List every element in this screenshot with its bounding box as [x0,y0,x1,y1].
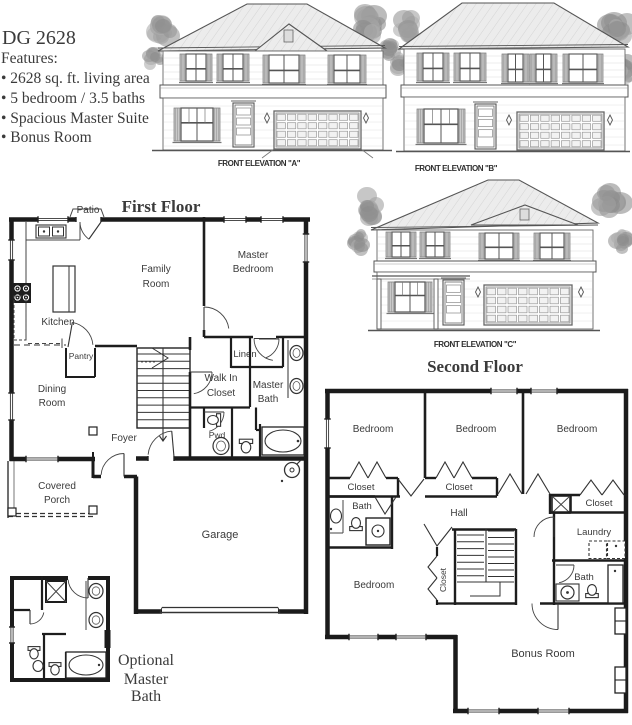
svg-text:Covered: Covered [38,481,76,492]
svg-text:Porch: Porch [44,495,70,506]
svg-text:Closet: Closet [438,567,448,592]
svg-text:Dining: Dining [38,384,66,395]
svg-text:Pwd: Pwd [209,430,226,440]
svg-text:Patio: Patio [77,205,100,216]
svg-text:Closet: Closet [207,388,236,399]
svg-text:Closet: Closet [586,498,613,509]
svg-text:Bath: Bath [352,501,372,512]
svg-text:Master: Master [124,671,169,688]
svg-text:Kitchen: Kitchen [41,317,74,328]
svg-text:• 2628 sq. ft. living area: • 2628 sq. ft. living area [1,70,150,87]
svg-text:Bedroom: Bedroom [233,264,274,275]
svg-text:Pantry: Pantry [69,351,94,361]
svg-text:Hall: Hall [450,508,467,519]
svg-text:FRONT ELEVATION "A": FRONT ELEVATION "A" [218,159,301,168]
svg-text:Garage: Garage [202,529,239,541]
svg-text:Second Floor: Second Floor [427,357,523,376]
svg-text:Features:: Features: [1,50,58,67]
svg-text:Laundry: Laundry [577,527,612,538]
svg-text:Room: Room [143,279,170,290]
svg-text:Optional: Optional [118,652,175,669]
svg-text:Linen: Linen [233,349,256,360]
svg-text:• 5 bedroom / 3.5 baths: • 5 bedroom / 3.5 baths [1,90,145,107]
svg-text:Family: Family [141,264,170,275]
svg-text:Bedroom: Bedroom [353,424,394,435]
svg-text:Bedroom: Bedroom [456,424,497,435]
svg-text:Foyer: Foyer [111,433,137,444]
svg-text:• Bonus Room: • Bonus Room [1,129,92,146]
svg-text:Closet: Closet [446,482,473,493]
svg-text:FRONT ELEVATION "C": FRONT ELEVATION "C" [434,340,517,349]
svg-text:Bath: Bath [574,572,594,583]
svg-text:First Floor: First Floor [122,197,201,216]
svg-text:• Spacious Master Suite: • Spacious Master Suite [1,110,149,127]
svg-text:Bath: Bath [258,394,279,405]
svg-text:Master: Master [253,380,284,391]
svg-text:Master: Master [238,250,269,261]
svg-text:FRONT ELEVATION "B": FRONT ELEVATION "B" [415,164,498,173]
svg-text:DG 2628: DG 2628 [2,27,76,49]
svg-text:Bedroom: Bedroom [354,580,395,591]
svg-text:Bath: Bath [131,688,161,705]
svg-text:Bonus Room: Bonus Room [511,648,575,660]
svg-text:Bedroom: Bedroom [557,424,598,435]
svg-text:Room: Room [39,398,66,409]
svg-text:Closet: Closet [348,482,375,493]
